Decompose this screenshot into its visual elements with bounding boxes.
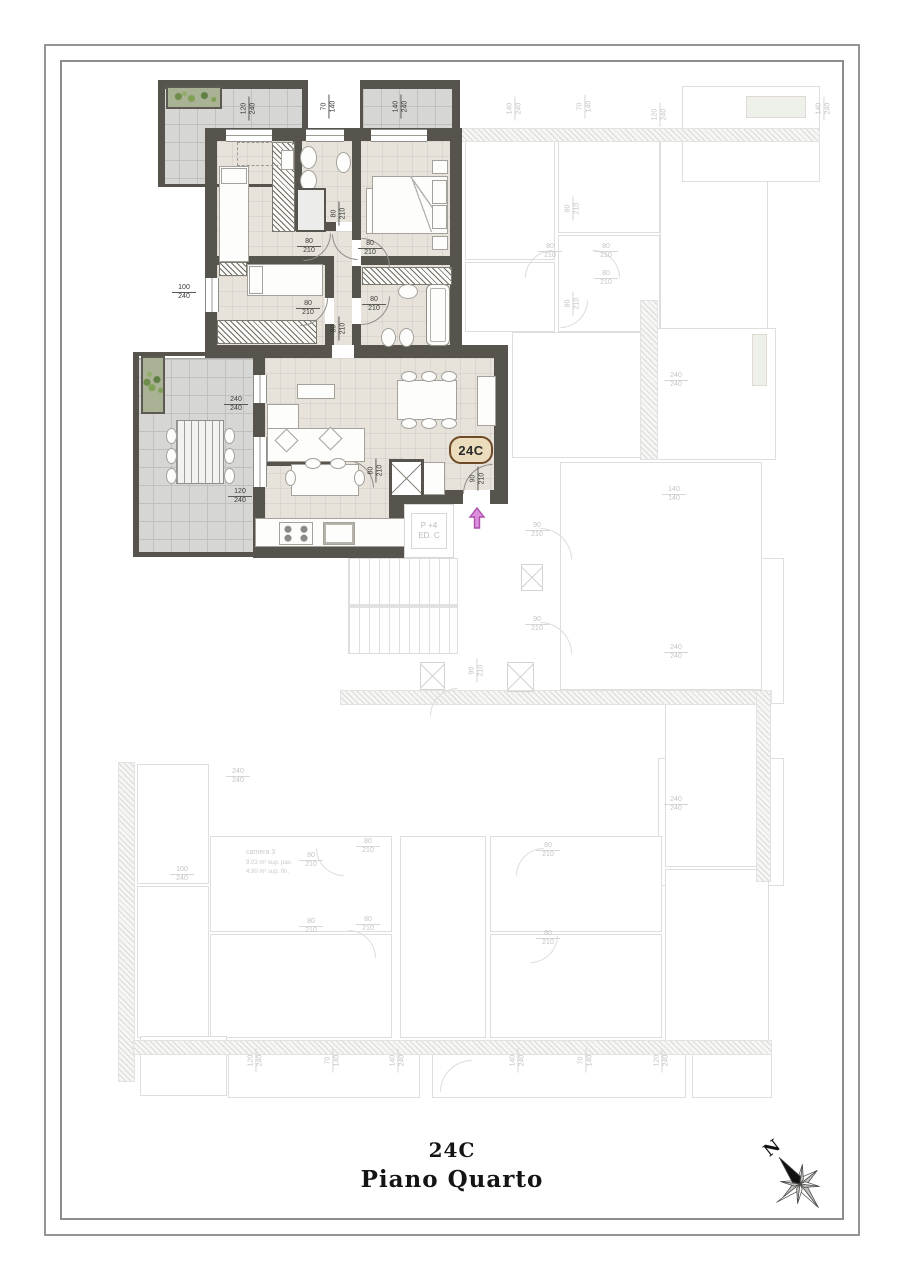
dim-label: 90210 <box>469 467 486 491</box>
dim-label: 80210 <box>330 317 347 341</box>
dim-width: 80 <box>367 459 375 483</box>
dim-width: 120 <box>240 97 248 121</box>
dimension-labels-layer: 1202407014014024010024080210802108021080… <box>0 0 904 1280</box>
dim-label: 240240 <box>224 396 248 413</box>
dim-height: 240 <box>172 292 196 301</box>
dim-height: 240 <box>228 496 252 505</box>
dim-height: 240 <box>249 97 258 121</box>
compass-rose: N <box>742 1118 852 1236</box>
dim-width: 240 <box>224 396 248 404</box>
stair-core-label-box: P +4 ED. C <box>404 504 454 558</box>
camera3-title: camera 3 <box>246 849 275 856</box>
dim-width: 140 <box>392 95 400 119</box>
dim-height: 240 <box>224 404 248 413</box>
dim-width: 80 <box>358 240 382 248</box>
dim-height: 210 <box>478 467 487 491</box>
unit-badge-label: 24C <box>458 443 483 458</box>
dim-label: 80210 <box>362 296 386 313</box>
dim-label: 100240 <box>172 284 196 301</box>
dim-label: 80210 <box>296 300 320 317</box>
dim-width: 80 <box>296 300 320 308</box>
camera3-line1: 9.03 m² sup. pav. <box>246 860 292 866</box>
floor-plan-sheet: 1402407014012024014024080210802108021080… <box>0 0 904 1280</box>
dim-height: 210 <box>376 459 385 483</box>
dim-height: 210 <box>297 246 321 255</box>
dim-width: 80 <box>362 296 386 304</box>
dim-height: 210 <box>339 202 348 226</box>
stair-core-label: P +4 ED. C <box>411 513 447 549</box>
dim-width: 90 <box>469 467 477 491</box>
dim-height: 140 <box>329 95 338 119</box>
dim-label: 80210 <box>330 202 347 226</box>
stair-floor-code: P +4 <box>421 521 438 531</box>
stair-building-code: ED. C <box>418 531 439 541</box>
dim-height: 210 <box>339 317 348 341</box>
dim-width: 80 <box>297 238 321 246</box>
entrance-arrow-icon <box>468 507 486 531</box>
camera3-line2: 4.90 m² sup. fin. <box>246 869 289 875</box>
dim-label: 120240 <box>228 488 252 505</box>
dim-label: 140240 <box>392 95 409 119</box>
dim-width: 120 <box>228 488 252 496</box>
dim-label: 80210 <box>358 240 382 257</box>
dim-label: 70140 <box>320 95 337 119</box>
dim-height: 210 <box>358 248 382 257</box>
dim-height: 210 <box>362 304 386 313</box>
dim-label: 80210 <box>297 238 321 255</box>
camera3-room-label: camera 3 9.03 m² sup. pav. 4.90 m² sup. … <box>246 848 292 877</box>
dim-width: 100 <box>172 284 196 292</box>
dim-height: 240 <box>401 95 410 119</box>
dim-label: 80210 <box>367 459 384 483</box>
dim-label: 120240 <box>240 97 257 121</box>
dim-height: 210 <box>296 308 320 317</box>
unit-badge: 24C <box>449 436 493 464</box>
dim-width: 80 <box>330 317 338 341</box>
dim-width: 70 <box>320 95 328 119</box>
dim-width: 80 <box>330 202 338 226</box>
compass-north-label: N <box>760 1136 785 1161</box>
